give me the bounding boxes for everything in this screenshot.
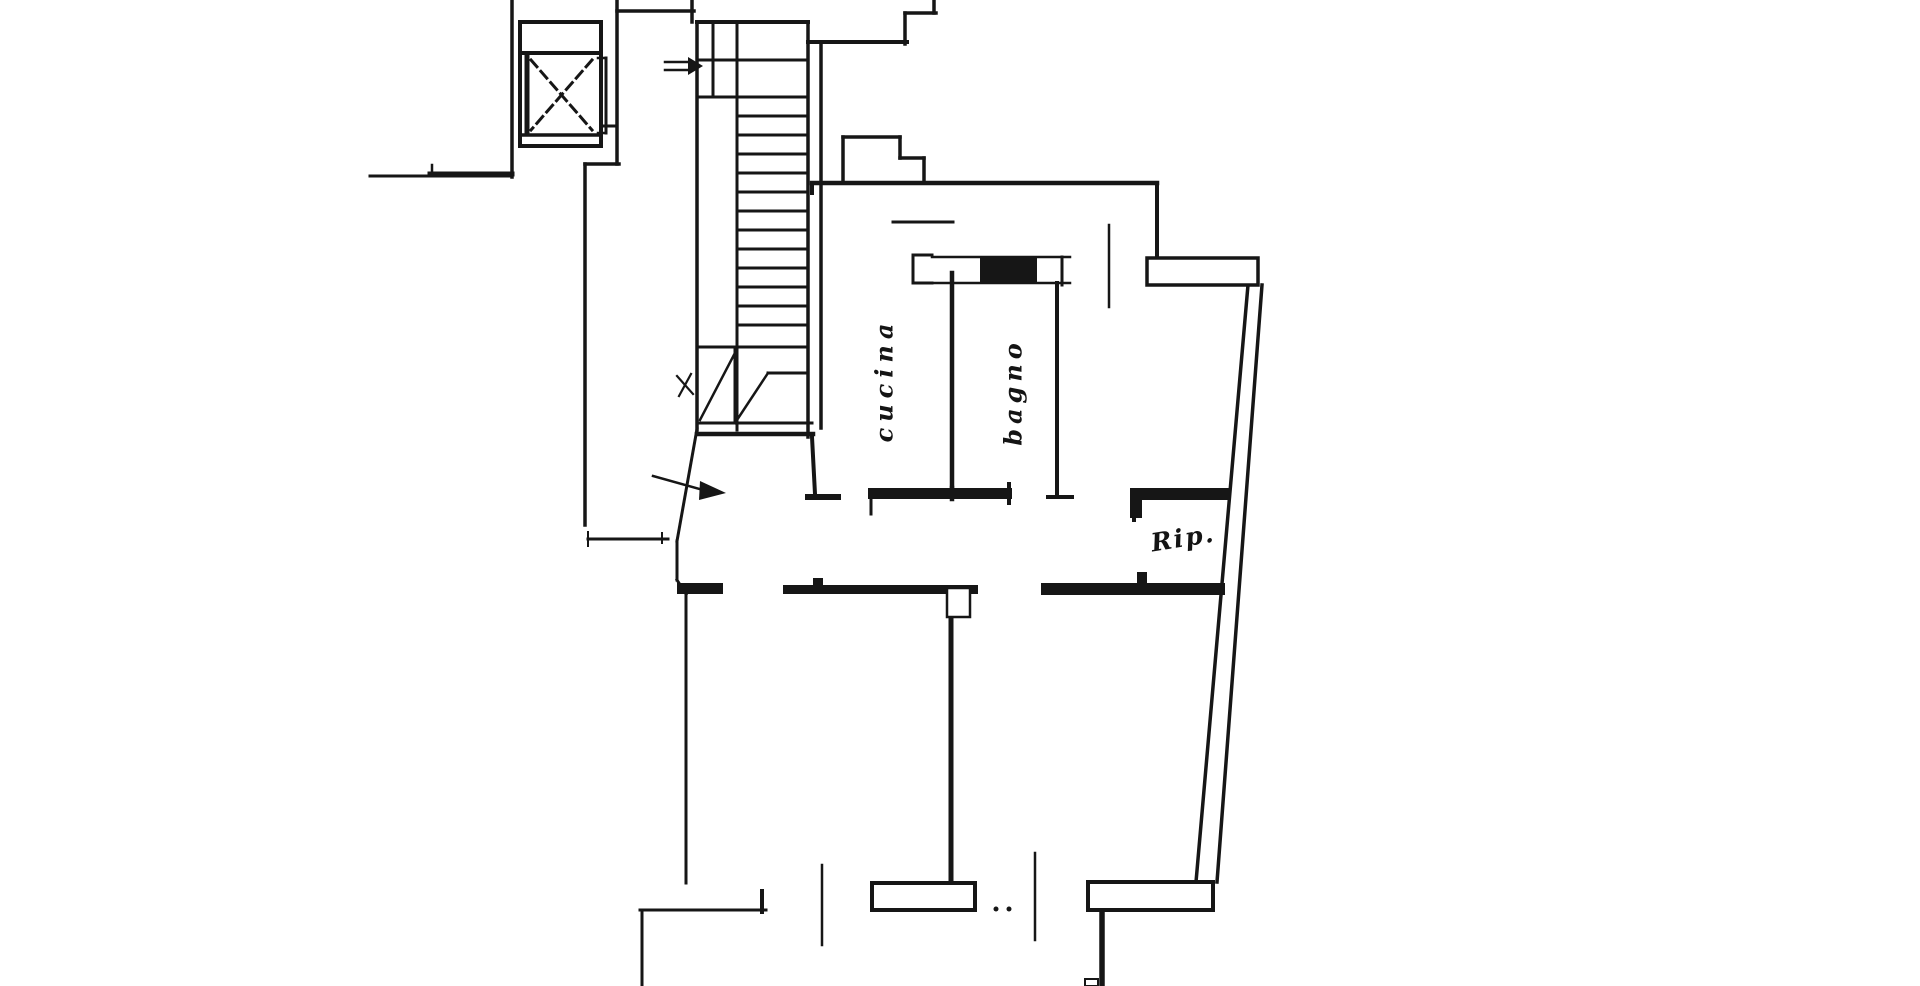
elevator-x-icon [531, 60, 592, 130]
wall-outlines-group [520, 22, 1258, 986]
floor-plan-drawing [0, 0, 1920, 986]
door-marks-group [994, 907, 1012, 912]
wall-lines-group [370, 0, 1262, 986]
floor-plan-page: cucina bagno Rip. [0, 0, 1920, 986]
room-label-bagno: bagno [999, 338, 1028, 446]
stair-treads-group [737, 116, 808, 325]
room-label-cucina: cucina [870, 318, 899, 443]
